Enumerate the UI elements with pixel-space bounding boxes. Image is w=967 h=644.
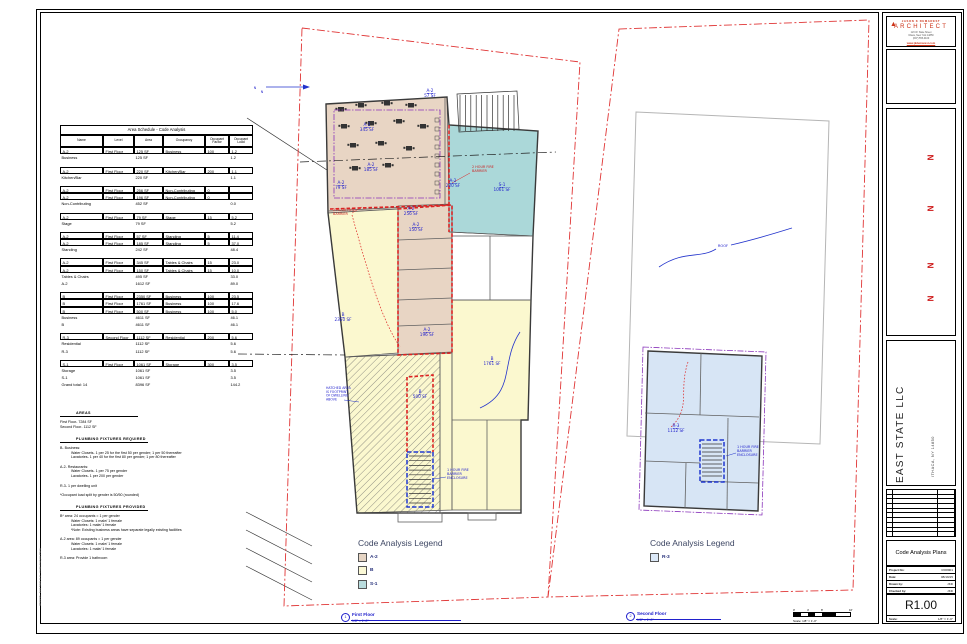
schedule-cell: First Floor <box>103 213 134 220</box>
project-field-label: Drawn by: <box>889 582 903 586</box>
project-location: ITHACA, NY 14850 <box>931 401 935 477</box>
schedule-header: NameLevelAreaOccupancyOccupant FactorOcc… <box>60 135 253 147</box>
schedule-cell <box>163 314 205 321</box>
schedule-cell <box>205 367 229 374</box>
second-floor-callout: 2 Second Floor 1/8" = 1'-0" <box>626 611 666 622</box>
schedule-cell <box>163 154 205 161</box>
firm-name: JASON K DEMAREST <box>887 19 955 23</box>
schedule-cell: First Floor <box>103 186 134 193</box>
schedule-cell <box>163 273 205 280</box>
schedule-cell: B <box>60 321 103 328</box>
schedule-cell: 37.0 <box>229 239 253 246</box>
schedule-cell <box>163 174 205 181</box>
schedule-cell: 1.2 <box>229 147 253 154</box>
schedule-cell: 11.4 <box>229 232 253 239</box>
schedule-cell: Tables & Chairs <box>163 258 205 265</box>
schedule-cell: 100 <box>205 147 229 154</box>
schedule-cell: Non-Contributing <box>163 193 205 200</box>
schedule-cell <box>205 340 229 347</box>
schedule-cell <box>103 174 134 181</box>
schedule-cell: 144.2 <box>229 381 253 388</box>
schedule-cell: 79 SF <box>134 220 163 227</box>
schedule-cell: Kitchen/Bar <box>60 174 103 181</box>
schedule-cell <box>205 154 229 161</box>
schedule-cell <box>229 186 253 193</box>
schedule-row: A-2First Floor79 SFStage155.2 <box>60 213 253 220</box>
schedule-cell: Tables & Chairs <box>163 266 205 273</box>
schedule-row: A-21612 SF89.0 <box>60 280 253 287</box>
project-field-value: JKD <box>947 582 953 586</box>
schedule-cell: 196 SF <box>134 193 163 200</box>
schedule-cell <box>205 174 229 181</box>
schedule-row: BFirst Floor500 SFBusiness1005.0 <box>60 307 253 314</box>
schedule-cell: Storage <box>60 367 103 374</box>
schedule-cell <box>103 200 134 207</box>
schedule-cell: First Floor <box>103 258 134 265</box>
firm-title: ARCHITECT <box>887 24 955 30</box>
schedule-cell: Residential <box>60 340 103 347</box>
schedule-row: A-2First Floor256 SFNon-Contributing0 <box>60 186 253 193</box>
scale-value: 1/8" = 1'-0" <box>938 617 953 621</box>
schedule-cell: A-2 <box>60 280 103 287</box>
schedule-column-header: Occupancy <box>163 135 205 147</box>
schedule-column-header: Occupant Load <box>229 135 253 147</box>
schedule-cell <box>205 246 229 253</box>
schedule-cell <box>205 220 229 227</box>
schedule-cell: A-2 <box>60 147 103 154</box>
schedule-cell: 1112 SF <box>134 348 163 355</box>
schedule-cell: 15 <box>205 213 229 220</box>
firm-address-line: (607) 555-0100 <box>887 37 955 40</box>
schedule-cell: 100 <box>205 292 229 299</box>
schedule-cell: 5.6 <box>229 340 253 347</box>
schedule-cell: Stage <box>163 213 205 220</box>
note-heading: AREAS <box>60 411 138 417</box>
firm-logo-icon: ▲ <box>890 21 897 28</box>
project-field-row: Project No:RO8901 <box>887 567 955 574</box>
legend-title: Code Analysis Legend <box>650 538 735 548</box>
legend-swatch <box>358 553 367 562</box>
revision-cell <box>893 528 938 532</box>
schedule-cell <box>163 321 205 328</box>
schedule-cell: 48.4 <box>229 246 253 253</box>
revision-cell <box>938 490 955 494</box>
schedule-cell: First Floor <box>103 232 134 239</box>
schedule-cell: 5 <box>205 239 229 246</box>
scale-segment <box>815 613 822 616</box>
legend-second-floor: Code Analysis Legend R-3 <box>650 538 735 562</box>
schedule-cell: 5.6 <box>229 333 253 340</box>
schedule-column-header: Level <box>103 135 134 147</box>
schedule-cell: A-2 <box>60 239 103 246</box>
schedule-cell <box>163 220 205 227</box>
revision-cell <box>893 518 938 522</box>
schedule-cell <box>103 348 134 355</box>
note-heading: PLUMBING FIXTURES REQUIRED <box>60 437 148 443</box>
schedule-row: BFirst Floor2350 SFBusiness10023.5 <box>60 292 253 299</box>
north-marker: N <box>925 296 934 302</box>
schedule-cell: Stage <box>60 220 103 227</box>
schedule-cell <box>205 273 229 280</box>
legend-label: S-1 <box>370 582 377 587</box>
schedule-cell <box>163 246 205 253</box>
schedule-cell: First Floor <box>103 266 134 273</box>
revision-cell <box>893 532 938 536</box>
sheet-number: R1.00 <box>905 598 937 612</box>
scale-caption: Scale: 1/8" = 1'-0" <box>793 619 873 623</box>
revision-cell <box>938 532 955 536</box>
schedule-row: Grand total: 148396 SF144.2 <box>60 381 253 388</box>
schedule-cell: A-2 <box>60 232 103 239</box>
schedule-cell: Non-Contributing <box>163 186 205 193</box>
project-field-label: Checked by: <box>889 589 906 593</box>
schedule-cell: 5.0 <box>229 307 253 314</box>
revision-cell <box>893 490 938 494</box>
schedule-cell: 220 SF <box>134 167 163 174</box>
schedule-cell: First Floor <box>103 299 134 306</box>
schedule-cell <box>205 381 229 388</box>
plot-stamp: 08/19/15 - East State LLC - Code Analysi… <box>39 548 42 606</box>
schedule-row: R-31112 SF5.6 <box>60 348 253 355</box>
schedule-cell: 0 <box>205 193 229 200</box>
schedule-cell: Second Floor <box>103 333 134 340</box>
schedule-row: Business4611 SF46.1 <box>60 314 253 321</box>
revision-row <box>887 532 955 537</box>
revision-cell <box>938 523 955 527</box>
callout-number: 1 <box>341 613 350 622</box>
schedule-cell: 495 SF <box>134 273 163 280</box>
schedule-cell: B <box>60 307 103 314</box>
view-title: First Floor <box>352 612 375 617</box>
legend-item: R-3 <box>650 553 735 562</box>
schedule-column-header: Name <box>60 135 103 147</box>
revision-cell <box>938 509 955 513</box>
schedule-cell: 0 <box>205 186 229 193</box>
schedule-cell: 1112 SF <box>134 333 163 340</box>
schedule-cell: Standing <box>60 246 103 253</box>
scale-segment <box>822 613 836 616</box>
schedule-cell: Business <box>60 314 103 321</box>
schedule-cell: 15 <box>205 258 229 265</box>
first-floor-callout: 1 First Floor 1/8" = 1'-0" <box>341 612 375 623</box>
schedule-cell: Business <box>60 154 103 161</box>
schedule-cell: Business <box>163 147 205 154</box>
project-field-row: Drawn by:JKD <box>887 581 955 588</box>
project-fields: Project No:RO8901Date:08/19/15Drawn by:J… <box>886 566 956 594</box>
schedule-cell <box>163 381 205 388</box>
schedule-row: S-11061 SF3.5 <box>60 374 253 381</box>
sheet-title: Code Analysis Plans <box>895 550 947 557</box>
schedule-row: A-2First Floor345 SFTables & Chairs1523.… <box>60 258 253 265</box>
sheet-number-box: R1.00 <box>886 594 956 616</box>
legend-swatch <box>650 553 659 562</box>
schedule-cell: 1061 SF <box>134 360 163 367</box>
schedule-row: Standing242 SF48.4 <box>60 246 253 253</box>
schedule-cell: Standing <box>163 232 205 239</box>
schedule-cell: Kitchen/Bar <box>163 167 205 174</box>
legend-swatch <box>358 580 367 589</box>
schedule-row: BFirst Floor1761 SFBusiness10017.6 <box>60 299 253 306</box>
schedule-cell: 1112 SF <box>134 340 163 347</box>
schedule-cell <box>163 340 205 347</box>
schedule-cell: 8396 SF <box>134 381 163 388</box>
project-client-box: EAST STATE LLC ITHACA, NY 14850 <box>886 340 956 486</box>
revision-cell <box>938 528 955 532</box>
schedule-cell: 256 SF <box>134 186 163 193</box>
view-title-line <box>636 619 721 620</box>
north-marker: N <box>925 206 934 212</box>
note-line: *Occupant load split by gender is 50/50 … <box>60 493 278 498</box>
revision-cell <box>893 513 938 517</box>
schedule-cell <box>163 200 205 207</box>
firm-website: www.jkdemarest.com <box>887 41 955 45</box>
schedule-cell: Storage <box>163 360 205 367</box>
schedule-cell: 100 <box>205 299 229 306</box>
project-field-label: Project No: <box>889 568 904 572</box>
schedule-cell: 46.1 <box>229 321 253 328</box>
schedule-cell: 33.0 <box>229 273 253 280</box>
schedule-cell <box>163 280 205 287</box>
schedule-cell: 57 SF <box>134 232 163 239</box>
schedule-row: Kitchen/Bar220 SF1.1 <box>60 174 253 181</box>
schedule-cell: 1061 SF <box>134 374 163 381</box>
schedule-cell: 3.5 <box>229 360 253 367</box>
north-marker: N <box>925 155 934 161</box>
schedule-row: A-2First Floor196 SFNon-Contributing0 <box>60 193 253 200</box>
schedule-cell: First Floor <box>103 307 134 314</box>
schedule-cell: 15 <box>205 266 229 273</box>
stamp-box <box>886 49 956 104</box>
schedule-row: A-2First Floor185 SFStanding537.0 <box>60 239 253 246</box>
revision-cell <box>893 504 938 508</box>
schedule-cell <box>205 314 229 321</box>
schedule-cell: 0.0 <box>229 200 253 207</box>
legend-label: R-3 <box>662 555 670 560</box>
project-field-value: JKD <box>947 589 953 593</box>
legend-title: Code Analysis Legend <box>358 538 443 548</box>
graphic-scale-bar: 0'4'8'16' Scale: 1/8" = 1'-0" <box>793 608 873 623</box>
schedule-cell <box>103 154 134 161</box>
code-analysis-notes: AREASFirst Floor- 7284 SFSecond Floor- 1… <box>60 404 278 561</box>
project-field-value: RO8901 <box>941 568 953 572</box>
schedule-row: A-2First Floor125 SFBusiness1001.2 <box>60 147 253 154</box>
schedule-cell: 242 SF <box>134 246 163 253</box>
schedule-cell <box>205 374 229 381</box>
schedule-cell: 5 <box>205 232 229 239</box>
schedule-cell: A-2 <box>60 167 103 174</box>
schedule-row: Tables & Chairs495 SF33.0 <box>60 273 253 280</box>
schedule-cell: 46.1 <box>229 314 253 321</box>
schedule-cell: 2350 SF <box>134 292 163 299</box>
schedule-cell: R-3 <box>60 348 103 355</box>
schedule-row: S-1First Floor1061 SFStorage3003.5 <box>60 360 253 367</box>
schedule-cell <box>103 220 134 227</box>
schedule-cell: Tables & Chairs <box>60 273 103 280</box>
schedule-cell: 300 <box>205 360 229 367</box>
schedule-cell: 150 SF <box>134 266 163 273</box>
schedule-row: A-2First Floor57 SFStanding511.4 <box>60 232 253 239</box>
schedule-cell: 79 SF <box>134 213 163 220</box>
schedule-cell: First Floor <box>103 193 134 200</box>
schedule-cell: Standing <box>163 239 205 246</box>
schedule-cell <box>163 348 205 355</box>
schedule-row: Non-Contributing452 SF0.0 <box>60 200 253 207</box>
schedule-cell: 5.6 <box>229 348 253 355</box>
revision-cell <box>938 504 955 508</box>
schedule-cell: First Floor <box>103 239 134 246</box>
schedule-cell: 100 <box>205 307 229 314</box>
schedule-cell <box>205 200 229 207</box>
schedule-cell: 1.2 <box>229 154 253 161</box>
scale-label: Scale: <box>889 617 898 621</box>
schedule-cell <box>103 273 134 280</box>
schedule-cell <box>103 280 134 287</box>
schedule-cell: 345 SF <box>134 258 163 265</box>
scale-segment <box>808 613 815 616</box>
scale-segment <box>801 613 808 616</box>
schedule-cell <box>205 321 229 328</box>
schedule-cell: 23.0 <box>229 258 253 265</box>
project-field-row: Date:08/19/15 <box>887 574 955 581</box>
sheet-scale-box: Scale: 1/8" = 1'-0" <box>886 616 956 622</box>
legend-label: A-2 <box>370 555 378 560</box>
project-field-label: Date: <box>889 575 896 579</box>
schedule-cell: 10.0 <box>229 266 253 273</box>
schedule-cell: S-1 <box>60 374 103 381</box>
schedule-cell: Business <box>163 307 205 314</box>
schedule-cell <box>205 280 229 287</box>
scale-tick-label: 8' <box>821 608 823 612</box>
schedule-cell: 1.1 <box>229 174 253 181</box>
schedule-cell: A-2 <box>60 266 103 273</box>
schedule-cell <box>103 321 134 328</box>
note-heading: PLUMBING FIXTURES PROVIDED <box>60 505 148 511</box>
revision-cell <box>893 495 938 499</box>
schedule-cell: First Floor <box>103 167 134 174</box>
schedule-cell: 1761 SF <box>134 299 163 306</box>
client-name: EAST STATE LLC <box>895 351 906 483</box>
schedule-cell: First Floor <box>103 292 134 299</box>
revision-cell <box>938 513 955 517</box>
schedule-title: Area Schedule - Code Analysis <box>60 125 253 135</box>
schedule-cell: A-2 <box>60 193 103 200</box>
schedule-cell: 1612 SF <box>134 280 163 287</box>
schedule-cell <box>103 314 134 321</box>
schedule-cell <box>103 367 134 374</box>
sheet-title-box: Code Analysis Plans <box>886 540 956 566</box>
schedule-cell: 220 SF <box>134 174 163 181</box>
schedule-cell: B <box>60 292 103 299</box>
schedule-cell: 452 SF <box>134 200 163 207</box>
schedule-cell: 200 <box>205 333 229 340</box>
north-marker-box: NNNN <box>886 108 956 336</box>
scale-segment <box>836 613 850 616</box>
schedule-cell <box>103 340 134 347</box>
schedule-column-header: Occupant Factor <box>205 135 229 147</box>
schedule-cell: 23.5 <box>229 292 253 299</box>
scale-tick-label: 0' <box>793 608 795 612</box>
revision-cell <box>893 509 938 513</box>
schedule-cell: B <box>60 299 103 306</box>
legend-item: A-2 <box>358 553 443 562</box>
schedule-cell: 4611 SF <box>134 321 163 328</box>
schedule-row: R-3Second Floor1112 SFResidential2005.6 <box>60 333 253 340</box>
schedule-cell: R-3 <box>60 333 103 340</box>
view-title: Second Floor <box>637 611 666 616</box>
schedule-cell: 3.5 <box>229 367 253 374</box>
callout-number: 2 <box>626 612 635 621</box>
schedule-cell <box>229 193 253 200</box>
schedule-cell: A-2 <box>60 186 103 193</box>
legend-first-floor: Code Analysis Legend A-2BS-1 <box>358 538 443 589</box>
schedule-cell: First Floor <box>103 360 134 367</box>
schedule-row: Business125 SF1.2 <box>60 154 253 161</box>
schedule-cell: 89.0 <box>229 280 253 287</box>
schedule-cell <box>103 374 134 381</box>
revision-cell <box>893 523 938 527</box>
schedule-cell: 185 SF <box>134 239 163 246</box>
schedule-row: Storage1061 SF3.5 <box>60 367 253 374</box>
schedule-cell: First Floor <box>103 147 134 154</box>
schedule-cell <box>103 381 134 388</box>
scale-segment <box>794 613 801 616</box>
schedule-cell: 1.1 <box>229 167 253 174</box>
schedule-row: B4611 SF46.1 <box>60 321 253 328</box>
schedule-cell: 17.6 <box>229 299 253 306</box>
schedule-row: Stage79 SF5.2 <box>60 220 253 227</box>
schedule-cell: Business <box>163 299 205 306</box>
legend-label: B <box>370 568 373 573</box>
note-line: Second Floor- 1112 SF <box>60 425 278 430</box>
schedule-cell: S-1 <box>60 360 103 367</box>
schedule-cell: Business <box>163 292 205 299</box>
revision-cell <box>938 518 955 522</box>
firm-logo: ▲ JASON K DEMAREST ARCHITECT 123 W. Stat… <box>886 16 956 47</box>
schedule-cell: Grand total: 14 <box>60 381 103 388</box>
legend-swatch <box>358 566 367 575</box>
schedule-cell <box>205 348 229 355</box>
schedule-cell: 125 SF <box>134 147 163 154</box>
revision-cell <box>938 499 955 503</box>
schedule-cell: 125 SF <box>134 154 163 161</box>
schedule-cell: Non-Contributing <box>60 200 103 207</box>
scale-tick-label: 4' <box>807 608 809 612</box>
schedule-row: A-2First Floor150 SFTables & Chairs1510.… <box>60 266 253 273</box>
schedule-cell: 3.5 <box>229 374 253 381</box>
schedule-cell: 500 SF <box>134 307 163 314</box>
revision-cell <box>938 495 955 499</box>
scale-tick-label: 16' <box>849 608 853 612</box>
schedule-cell: A-2 <box>60 258 103 265</box>
schedule-cell: 4611 SF <box>134 314 163 321</box>
schedule-cell <box>163 367 205 374</box>
schedule-cell: 5.2 <box>229 220 253 227</box>
revision-cell <box>893 499 938 503</box>
schedule-cell: 200 <box>205 167 229 174</box>
area-schedule-table: Area Schedule - Code Analysis NameLevelA… <box>60 125 253 388</box>
schedule-cell: 1061 SF <box>134 367 163 374</box>
schedule-cell: Residential <box>163 333 205 340</box>
schedule-cell: A-2 <box>60 213 103 220</box>
view-title-line <box>351 620 461 621</box>
note-line: R-3 area: Provide 1 bathroom <box>60 556 278 561</box>
firm-address: 123 W. State StreetIthaca, New York 1485… <box>887 31 955 40</box>
schedule-cell <box>163 374 205 381</box>
schedule-row: Residential1112 SF5.6 <box>60 340 253 347</box>
project-field-value: 08/19/15 <box>941 575 953 579</box>
schedule-cell <box>103 246 134 253</box>
legend-item: B <box>358 566 443 575</box>
